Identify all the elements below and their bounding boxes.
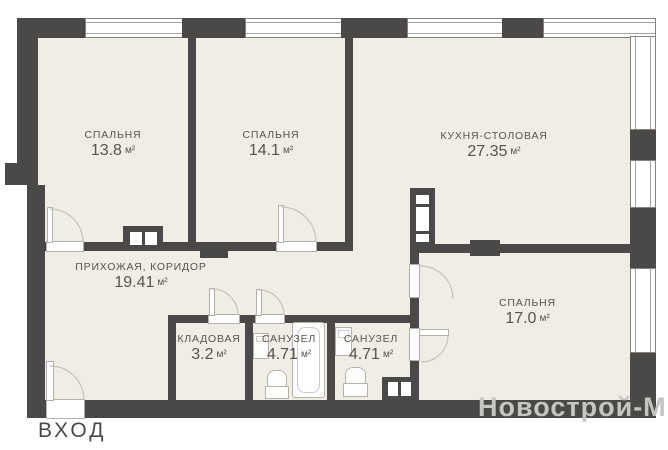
door-arc-bedroom2 xyxy=(281,207,316,242)
room-area: 14.1м² xyxy=(196,142,346,160)
floor-plan: СПАЛЬНЯ 13.8м² СПАЛЬНЯ 14.1м² КУХНЯ-СТОЛ… xyxy=(0,0,668,450)
room-name: САНУЗЕЛ xyxy=(330,333,412,345)
room-area-unit: м² xyxy=(539,313,549,324)
room-name: СПАЛЬНЯ xyxy=(38,129,188,141)
entrance-label: ВХОД xyxy=(38,419,107,443)
room-name: САНУЗЕЛ xyxy=(249,333,329,345)
room-name: КЛАДОВАЯ xyxy=(170,333,248,345)
room-area-unit: м² xyxy=(125,145,135,156)
room-area-value: 13.8 xyxy=(91,142,122,159)
room-area: 13.8м² xyxy=(38,142,188,160)
door-arc-bedroom1 xyxy=(50,209,83,242)
room-name: КУХНЯ-СТОЛОВАЯ xyxy=(355,130,633,142)
room-name: СПАЛЬНЯ xyxy=(420,297,635,309)
door-arc-entrance xyxy=(50,366,84,400)
room-area: 3.2м² xyxy=(170,346,248,364)
room-name: ПРИХОЖАЯ, КОРИДОР xyxy=(45,261,237,273)
room-area-value: 27.35 xyxy=(467,143,507,160)
room-area-value: 14.1 xyxy=(249,142,280,159)
room-area: 4.71м² xyxy=(249,346,329,364)
room-label-bathroom2: САНУЗЕЛ 4.71м² xyxy=(330,333,412,364)
room-label-bedroom1: СПАЛЬНЯ 13.8м² xyxy=(38,129,188,160)
room-area: 19.41м² xyxy=(45,274,237,292)
room-area-unit: м² xyxy=(157,277,167,288)
room-area-unit: м² xyxy=(383,349,393,360)
room-label-storage: КЛАДОВАЯ 3.2м² xyxy=(170,333,248,364)
door-arc-bathroom1 xyxy=(259,290,284,315)
room-label-bedroom2: СПАЛЬНЯ 14.1м² xyxy=(196,129,346,160)
room-name: СПАЛЬНЯ xyxy=(196,129,346,141)
room-label-hallway: ПРИХОЖАЯ, КОРИДОР 19.41м² xyxy=(45,261,237,292)
room-area-value: 4.71 xyxy=(349,346,380,363)
room-label-bathroom1: САНУЗЕЛ 4.71м² xyxy=(249,333,329,364)
door-arc-bathroom2 xyxy=(421,336,448,362)
room-area-value: 3.2 xyxy=(191,346,213,363)
room-label-bedroom3: СПАЛЬНЯ 17.0м² xyxy=(420,297,635,328)
room-area-unit: м² xyxy=(301,349,311,360)
room-area-unit: м² xyxy=(217,349,227,360)
room-area: 27.35м² xyxy=(355,143,633,161)
door-arc-bedroom3 xyxy=(420,266,453,299)
door-arc-storage xyxy=(212,289,238,315)
room-area-value: 19.41 xyxy=(114,274,154,291)
door-arcs-layer xyxy=(0,0,668,450)
room-area-unit: м² xyxy=(283,145,293,156)
room-area-value: 4.71 xyxy=(267,346,298,363)
room-area: 17.0м² xyxy=(420,310,635,328)
room-area-unit: м² xyxy=(510,146,520,157)
room-area-value: 17.0 xyxy=(505,310,536,327)
room-area: 4.71м² xyxy=(330,346,412,364)
watermark-logo: Новострой-М xyxy=(478,392,667,423)
room-label-kitchen: КУХНЯ-СТОЛОВАЯ 27.35м² xyxy=(355,130,633,161)
